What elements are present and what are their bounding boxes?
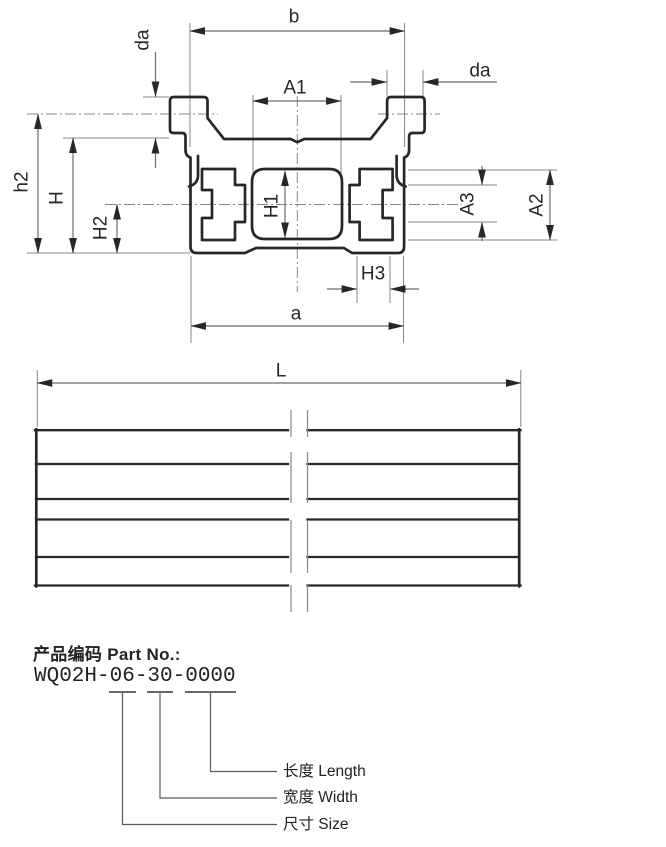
dim-label-l: L: [276, 361, 287, 382]
dim-label-a: a: [291, 304, 302, 325]
part-no-title: 产品编码 Part No.:: [33, 640, 181, 665]
dim-label-a1: A1: [283, 78, 306, 99]
dim-label-h: H: [47, 191, 68, 205]
dim-label-da-left: da: [133, 29, 154, 51]
break-lines: [291, 410, 308, 612]
dim-label-h1: H1: [262, 194, 283, 218]
technical-drawing: b A1 da da h2 H H2 H1 A3 A2 H3 a L: [0, 0, 666, 847]
dim-label-h2-small: H2: [91, 216, 112, 240]
dim-label-da-right: da: [469, 61, 491, 82]
callout-line-width: [160, 692, 277, 798]
part-number-callout-lines: [109, 692, 277, 825]
dim-label-h2: h2: [12, 171, 33, 192]
side-view: L: [35, 361, 521, 613]
part-number: WQ02H-06-30-0000: [34, 665, 236, 688]
drawing-page: b A1 da da h2 H H2 H1 A3 A2 H3 a L: [0, 0, 666, 847]
dim-label-a3: A3: [458, 192, 479, 215]
callout-line-length: [211, 692, 278, 772]
callout-label-width: 宽度 Width: [283, 789, 358, 807]
callout-label-length: 长度 Length: [283, 763, 366, 781]
callout-line-size: [123, 692, 278, 825]
callout-label-size: 尺寸 Size: [283, 816, 348, 834]
cross-section-view: b A1 da da h2 H H2 H1 A3 A2 H3 a: [12, 7, 558, 344]
dim-label-b: b: [289, 7, 300, 28]
dim-label-h3: H3: [361, 264, 385, 285]
dim-label-a2: A2: [527, 193, 548, 216]
